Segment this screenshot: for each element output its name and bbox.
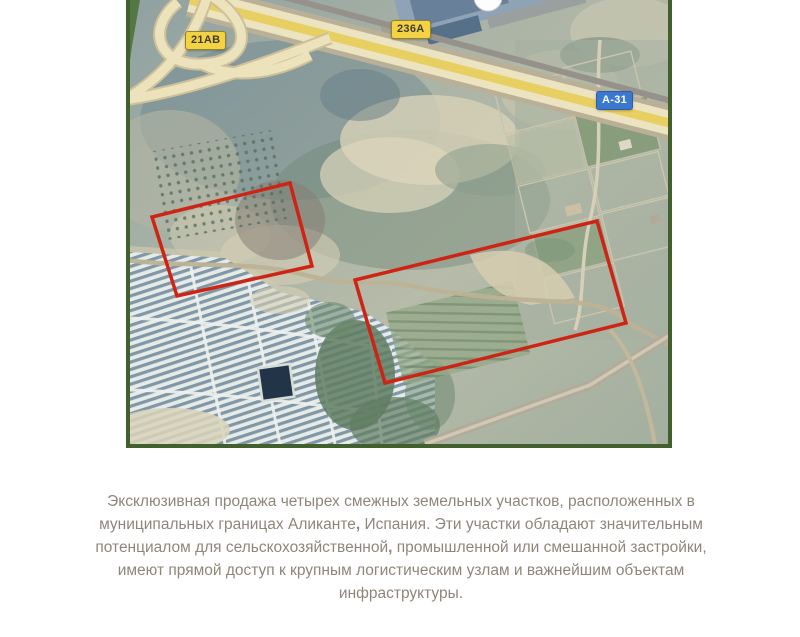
- listing-description: Эксклюзивная продажа четырех смежных зем…: [90, 490, 712, 605]
- road-label-a31: A-31: [596, 91, 633, 110]
- satellite-map-image[interactable]: 21AB 236A A-31: [126, 0, 672, 448]
- road-label-21ab: 21AB: [185, 31, 226, 50]
- page-root: 21AB 236A A-31 Эксклюзивная продажа четы…: [0, 0, 800, 637]
- irrigation-pond: [258, 364, 294, 401]
- satellite-map-canvas: [130, 0, 668, 444]
- road-label-236a: 236A: [391, 20, 431, 39]
